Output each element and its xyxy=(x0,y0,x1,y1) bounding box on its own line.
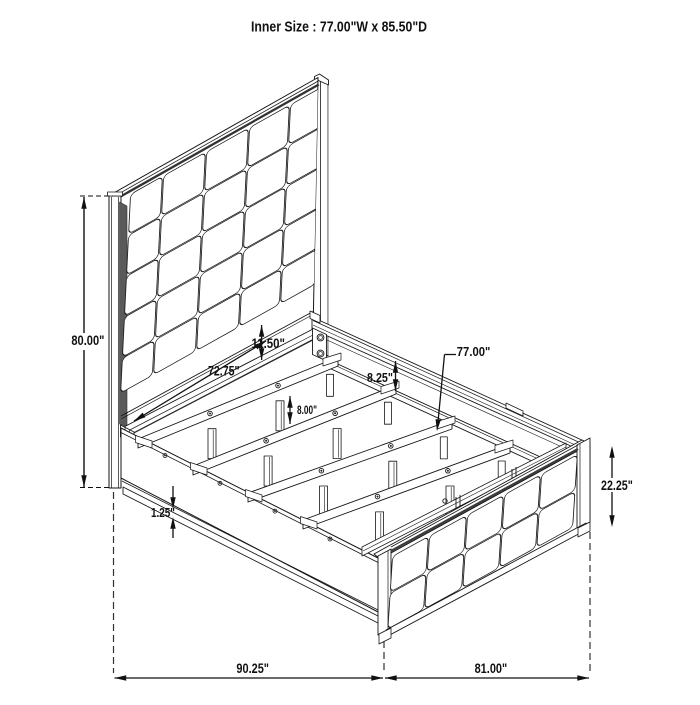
svg-text:90.25": 90.25" xyxy=(236,660,269,676)
svg-text:8.00": 8.00" xyxy=(297,405,317,417)
svg-text:Inner Size : 77.00"W x 85.50"D: Inner Size : 77.00"W x 85.50"D xyxy=(251,20,427,36)
svg-text:81.00": 81.00" xyxy=(475,660,508,676)
svg-text:1.25": 1.25" xyxy=(151,506,175,520)
svg-text:11.50": 11.50" xyxy=(252,336,286,351)
svg-text:72.75": 72.75" xyxy=(208,364,240,379)
svg-text:8.25": 8.25" xyxy=(367,370,393,385)
svg-text:80.00": 80.00" xyxy=(71,332,104,348)
svg-text:77.00": 77.00" xyxy=(457,344,491,359)
svg-text:22.25": 22.25" xyxy=(601,478,633,493)
